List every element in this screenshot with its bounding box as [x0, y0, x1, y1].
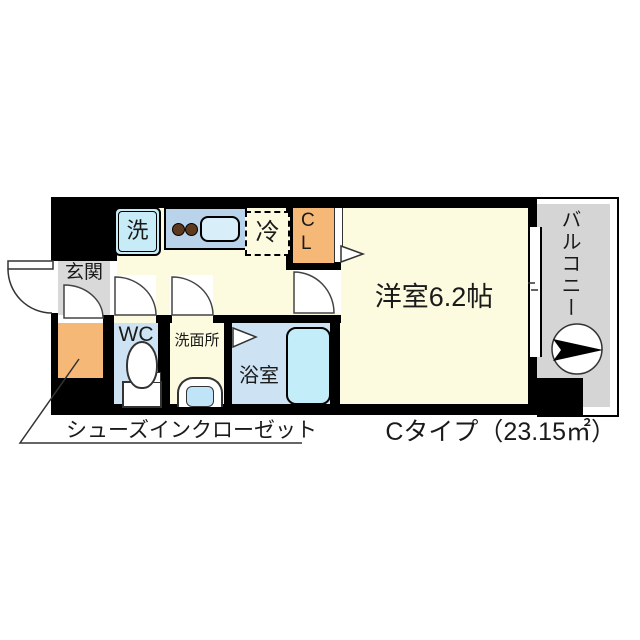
closet-label-line2: L: [301, 234, 312, 255]
kitchen-sink: [200, 216, 240, 242]
wall-below-shoes-closet: [58, 378, 104, 405]
main-room-label: 洋室6.2帖: [350, 283, 518, 313]
washbasin: [177, 377, 223, 407]
floor-plan-page: { "floor_plan": { "unit_type_label": "Cタ…: [0, 0, 640, 640]
wall-hall-segment-2: [213, 315, 341, 323]
bathroom-label: 浴室: [233, 364, 285, 388]
refrigerator-space: 冷: [245, 211, 290, 256]
closet-label-line1: C: [301, 211, 315, 232]
sliding-window: [528, 227, 542, 357]
entrance-door-leaf: [8, 261, 53, 269]
wall-hall-segment-1: [156, 315, 172, 323]
washbasin-bowl: [186, 386, 214, 407]
unit-type-label: Cタイプ（23.15㎡）: [385, 419, 616, 447]
shoes-in-closet-area: [58, 323, 104, 378]
bathtub: [286, 327, 331, 405]
shoes-closet-annotation: シューズインクローゼット: [66, 419, 317, 442]
wall-left-lower: [51, 313, 58, 415]
closet-door-panel: [334, 208, 343, 262]
stove-burner-icon: [172, 223, 185, 236]
entrance-label: 玄関: [58, 262, 110, 284]
wall-bottom-right-corner: [528, 378, 583, 415]
washing-machine-box: 洗: [114, 207, 161, 256]
entrance-step-strip: [110, 261, 117, 315]
stove-burner-icon: [185, 223, 198, 236]
wall-left-upper-block: [51, 197, 117, 261]
refrigerator-label: 冷: [256, 220, 280, 246]
toilet-bowl: [126, 341, 158, 389]
washing-machine-inner-border: [118, 211, 157, 252]
wall-shoes-closet-right: [103, 315, 114, 405]
kitchen-counter: [164, 207, 247, 250]
wall-bathroom-right: [330, 323, 340, 405]
closet-area: C L: [293, 207, 335, 264]
balcony-label: バルコニー: [558, 209, 580, 339]
toilet-label: WC: [114, 324, 158, 346]
entrance-door-swing-icon: [8, 269, 52, 313]
washroom-label: 洗面所: [167, 332, 227, 350]
